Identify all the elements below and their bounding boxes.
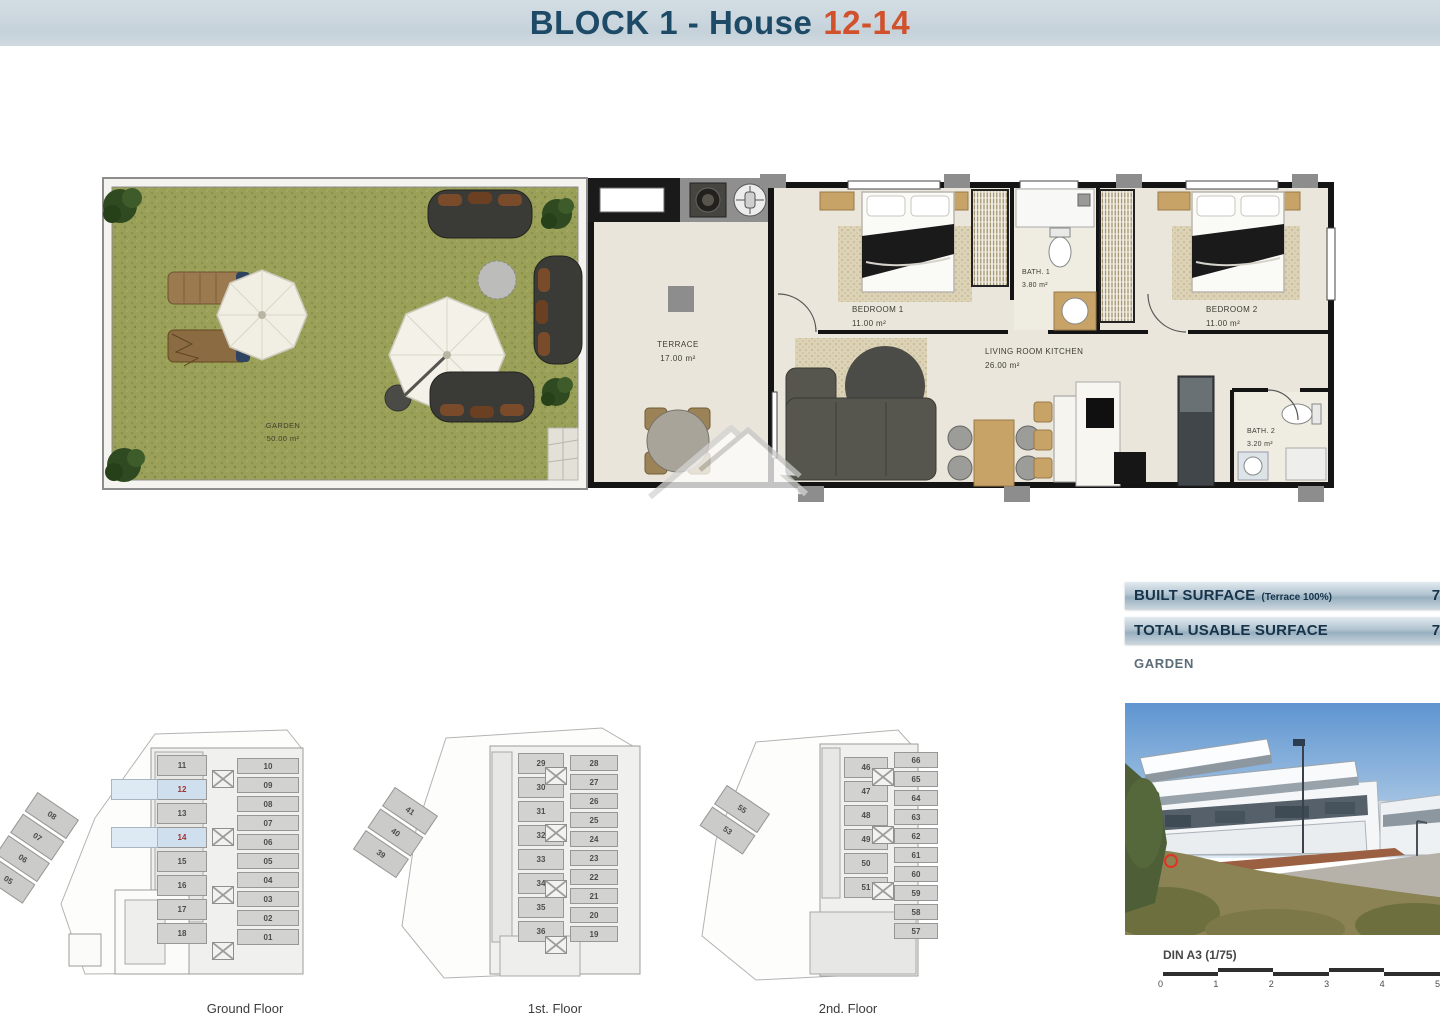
unit-cell-20: 20 (570, 907, 618, 923)
scale-bar (1163, 968, 1440, 976)
svg-text:3.80 m²: 3.80 m² (1022, 282, 1048, 289)
unit-cell-62: 62 (894, 828, 938, 844)
unit-cell-63: 63 (894, 809, 938, 825)
svg-text:3.20 m²: 3.20 m² (1247, 441, 1273, 448)
elevator-shaft-icon (212, 828, 234, 846)
terrace-note: (Terrace 100%) (1262, 592, 1332, 603)
unit-cell-60: 60 (894, 866, 938, 882)
unit-cell-17: 17 (157, 899, 207, 920)
garden-area: GARDEN 50.00 m² (103, 178, 587, 489)
built-surface-label: BUILT SURFACE (1134, 587, 1256, 604)
bath2: BATH. 2 3.20 m² (1236, 390, 1328, 482)
bath1: BATH. 1 3.80 m² (1014, 188, 1096, 330)
elevator-shaft-icon (212, 942, 234, 960)
unit-cell-33: 33 (518, 849, 564, 870)
shower (1286, 448, 1326, 480)
unit-cell-07: 07 (237, 815, 299, 831)
built-surface-value: 78.3 (1432, 587, 1440, 604)
main-floor-plan: GARDEN 50.00 m² (0, 0, 1440, 560)
ground-center-units: 1112131415161718 (157, 755, 207, 944)
elevator-shaft-icon (872, 882, 894, 900)
garden-side-table (478, 261, 516, 299)
first-right-units: 28272625242322212019 (570, 755, 618, 942)
unit-cell-09: 09 (237, 777, 299, 793)
unit-cell-16: 16 (157, 875, 207, 896)
toilet-icon (1282, 404, 1321, 424)
scale-label: DIN A3 (1/75) (1163, 948, 1237, 962)
unit-cell-58: 58 (894, 904, 938, 920)
svg-text:BATH. 1: BATH. 1 (1022, 269, 1050, 276)
ground-floor-label: Ground Floor (145, 1001, 345, 1016)
unit-cell-31: 31 (518, 801, 564, 822)
garden-sofa (428, 190, 532, 238)
fan-icon (734, 184, 766, 216)
unit-cell-57: 57 (894, 923, 938, 939)
kitchen-island (1034, 396, 1076, 482)
unit-cell-48: 48 (844, 805, 888, 826)
unit-cell-21: 21 (570, 888, 618, 904)
svg-text:11.00 m²: 11.00 m² (1206, 319, 1240, 328)
parasol-icon (217, 270, 307, 360)
usable-surface-label: TOTAL USABLE SURFACE (1134, 622, 1328, 639)
second-floor-plan: 464748495051 66656463626160595857 5553 2… (660, 722, 940, 990)
unit-cell-01: 01 (237, 929, 299, 945)
unit-cell-27: 27 (570, 774, 618, 790)
svg-text:BATH. 2: BATH. 2 (1247, 428, 1275, 435)
toilet-icon (1049, 228, 1071, 267)
scale-tick: 5 (1435, 979, 1440, 989)
unit-cell-23: 23 (570, 850, 618, 866)
svg-text:50.00 m²: 50.00 m² (267, 434, 300, 443)
scale-tick: 1 (1213, 979, 1218, 989)
unit-cell-61: 61 (894, 847, 938, 863)
unit-cell-18: 18 (157, 923, 207, 944)
unit-cell-50: 50 (844, 853, 888, 874)
unit-cell-26: 26 (570, 793, 618, 809)
unit-cell-02: 02 (237, 910, 299, 926)
unit-cell-14: 14 (157, 827, 207, 848)
unit-cell-05: 05 (237, 853, 299, 869)
kitchen-counter (1076, 382, 1120, 486)
svg-text:17.00 m²: 17.00 m² (660, 354, 696, 363)
tv (1114, 452, 1146, 484)
second-floor-label: 2nd. Floor (748, 1001, 948, 1016)
ground-right-units: 10090807060504030201 (237, 758, 299, 945)
svg-text:BEDROOM 2: BEDROOM 2 (1206, 305, 1258, 314)
vanity-sink (1238, 452, 1268, 480)
unit-cell-65: 65 (894, 771, 938, 787)
unit-cell-11: 11 (157, 755, 207, 776)
svg-text:LIVING ROOM KITCHEN: LIVING ROOM KITCHEN (985, 347, 1083, 356)
first-floor-label: 1st. Floor (455, 1001, 655, 1016)
ground-floor-plan: 1112131415161718 10090807060504030201 08… (55, 722, 335, 990)
built-surface-row: BUILT SURFACE (Terrace 100%) 78.3 (1125, 582, 1440, 609)
elevator-shaft-icon (545, 767, 567, 785)
scale-ticks: 0 1 2 3 4 5 (1158, 979, 1440, 989)
building-photo (1125, 703, 1440, 935)
plan-sheet: BLOCK 1 - House 12-14 (0, 0, 1440, 1024)
elevator-shaft-icon (545, 936, 567, 954)
unit-cell-35: 35 (518, 897, 564, 918)
fridge-tall-units (1178, 376, 1214, 486)
unit-cell-13: 13 (157, 803, 207, 824)
svg-text:26.00 m²: 26.00 m² (985, 361, 1020, 370)
elevator-shaft-icon (545, 880, 567, 898)
unit-cell-25: 25 (570, 812, 618, 828)
elevator-shaft-icon (212, 770, 234, 788)
unit-cell-28: 28 (570, 755, 618, 771)
terrace-column (668, 286, 694, 312)
vanity-sink (1054, 292, 1096, 330)
second-right-units: 66656463626160595857 (894, 752, 938, 939)
unit-cell-12: 12 (157, 779, 207, 800)
scale-tick: 4 (1380, 979, 1385, 989)
usable-surface-value: 72.0 (1432, 622, 1440, 639)
elevator-shaft-icon (212, 886, 234, 904)
unit-cell-66: 66 (894, 752, 938, 768)
unit-cell-22: 22 (570, 869, 618, 885)
garden-surface-row: GARDEN 50. (1125, 650, 1440, 677)
unit-cell-15: 15 (157, 851, 207, 872)
first-floor-plan: 2930313233343536 28272625242322212019 41… (380, 722, 660, 990)
unit-cell-06: 06 (237, 834, 299, 850)
washing-machine-icon (690, 183, 726, 217)
unit-cell-64: 64 (894, 790, 938, 806)
elevator-shaft-icon (872, 826, 894, 844)
garden-sofa (430, 372, 534, 422)
unit-cell-59: 59 (894, 885, 938, 901)
svg-text:11.00 m²: 11.00 m² (852, 319, 886, 328)
unit-cell-24: 24 (570, 831, 618, 847)
svg-text:GARDEN: GARDEN (266, 421, 301, 430)
scale-tick: 0 (1158, 979, 1163, 989)
unit-cell-03: 03 (237, 891, 299, 907)
usable-surface-row: TOTAL USABLE SURFACE 72.0 (1125, 617, 1440, 644)
svg-text:TERRACE: TERRACE (657, 340, 699, 349)
elevator-shaft-icon (545, 824, 567, 842)
unit-cell-08: 08 (237, 796, 299, 812)
scale-tick: 3 (1324, 979, 1329, 989)
scale-tick: 2 (1269, 979, 1274, 989)
elevator-shaft-icon (872, 768, 894, 786)
wardrobe (972, 190, 1008, 286)
garden-surface-label: GARDEN (1134, 656, 1194, 671)
unit-cell-10: 10 (237, 758, 299, 774)
tile-path (548, 428, 578, 480)
svg-text:BEDROOM 1: BEDROOM 1 (852, 305, 904, 314)
unit-cell-04: 04 (237, 872, 299, 888)
unit-cell-19: 19 (570, 926, 618, 942)
garden-sofa (534, 256, 582, 364)
wardrobe (1100, 190, 1134, 322)
